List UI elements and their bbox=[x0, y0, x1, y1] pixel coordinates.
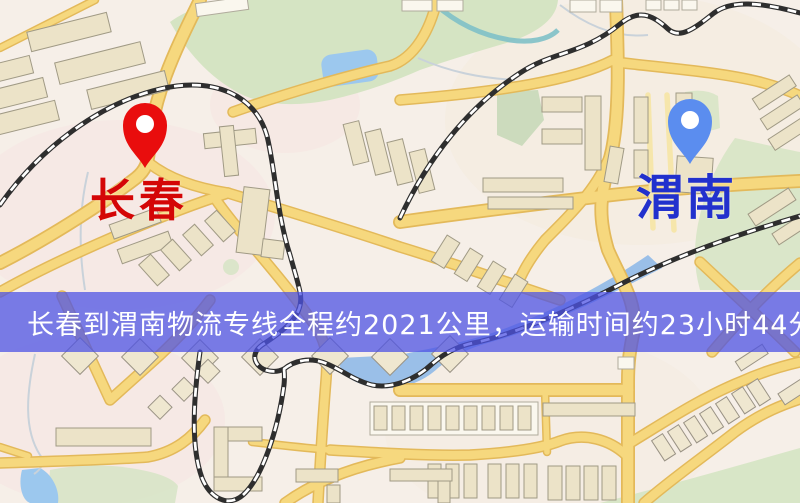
route-info-text: 长春到渭南物流专线全程约2021公里，运输时间约23小时44分钟. bbox=[0, 303, 800, 342]
map-view: 长春 渭南 长春到渭南物流专线全程约2021公里，运输时间约23小时44分钟. bbox=[0, 0, 800, 503]
destination-label: 渭南 bbox=[636, 174, 736, 222]
origin-label: 长春 bbox=[90, 178, 188, 223]
destination-pin-icon[interactable] bbox=[664, 96, 716, 166]
map-background bbox=[0, 0, 800, 503]
route-info-banner: 长春到渭南物流专线全程约2021公里，运输时间约23小时44分钟. bbox=[0, 292, 800, 352]
origin-pin-icon[interactable] bbox=[119, 100, 171, 170]
